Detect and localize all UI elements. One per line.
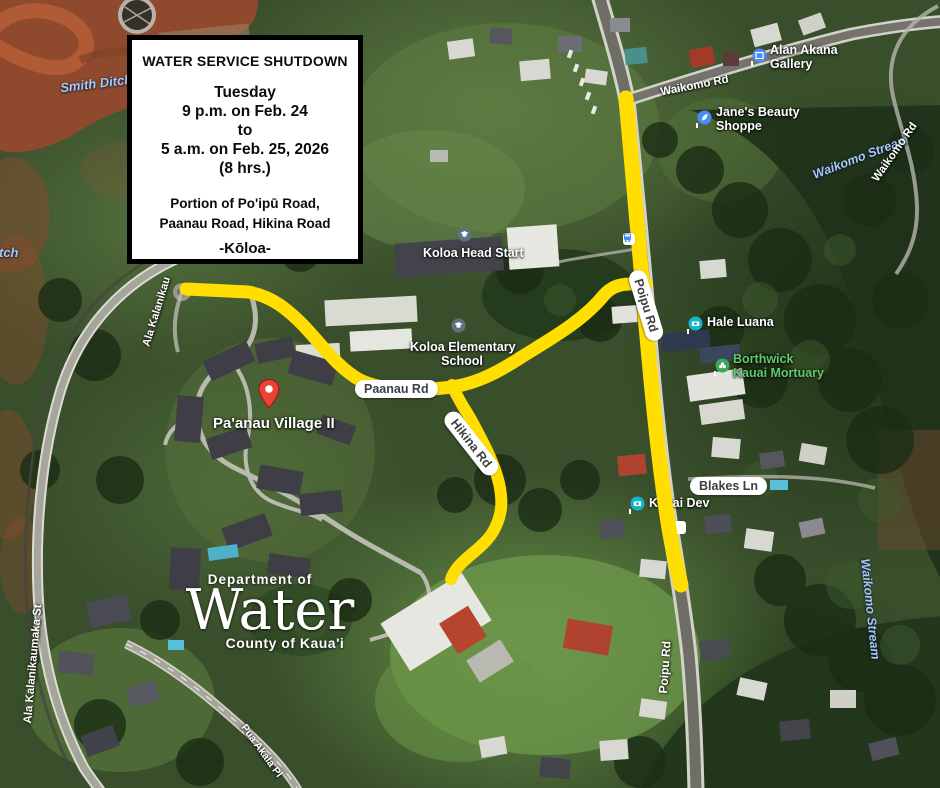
notice-area-line1: Portion of Po'ipū Road, bbox=[159, 194, 330, 214]
logo-water-wordmark: Water bbox=[150, 585, 390, 637]
department-of-water-logo: Department of Water County of Kaua'i bbox=[150, 572, 390, 651]
notice-start-time: 9 p.m. on Feb. 24 bbox=[161, 102, 329, 121]
notice-area-line2: Paanau Road, Hikina Road bbox=[159, 214, 330, 234]
poi-label-alan-akana-gallery: Alan Akana Gallery bbox=[770, 43, 838, 71]
poi-label-koloa-head-start: Koloa Head Start bbox=[423, 246, 524, 260]
notice-title: WATER SERVICE SHUTDOWN bbox=[142, 53, 347, 69]
notice-end-time: 5 a.m. on Feb. 25, 2026 bbox=[161, 140, 329, 159]
road-pill-blakes-ln: Blakes Ln bbox=[690, 477, 767, 495]
notice-duration: (8 hrs.) bbox=[161, 159, 329, 178]
poi-label-janes-beauty-shoppe: Jane's Beauty Shoppe bbox=[716, 105, 800, 133]
water-label-ditch: Ditch bbox=[0, 245, 19, 260]
poi-label-borthwick-mortuary: Borthwick Kauai Mortuary bbox=[733, 352, 824, 380]
route-paanau-rd bbox=[186, 284, 646, 390]
notice-to: to bbox=[161, 121, 329, 140]
notice-town: -Kōloa- bbox=[219, 240, 271, 257]
poi-label-hale-luana: Hale Luana bbox=[707, 315, 774, 329]
poi-label-koloa-elementary-school: Koloa Elementary School bbox=[410, 340, 514, 368]
road-pill-paanau-rd: Paanau Rd bbox=[355, 380, 438, 398]
bus-stop-icon bbox=[623, 233, 635, 245]
poi-label-paanau-village: Pa'anau Village II bbox=[213, 417, 335, 431]
route-poipu-rd bbox=[626, 98, 681, 585]
notice-day: Tuesday bbox=[161, 83, 329, 102]
water-shutdown-notice-box: WATER SERVICE SHUTDOWN Tuesday 9 p.m. on… bbox=[127, 35, 363, 264]
map-canvas: Kauai Dev Smith Ditch Ditch Waikomo Stre… bbox=[0, 0, 940, 788]
